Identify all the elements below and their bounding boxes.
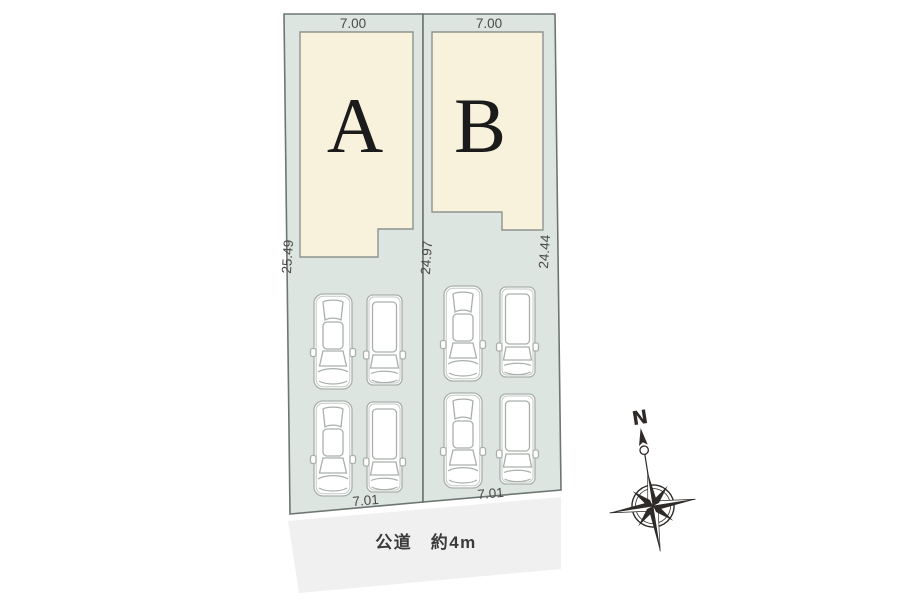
compass-rose-icon: N [597, 406, 702, 558]
lot-b-letter: B [454, 82, 506, 169]
car-minivan-icon [497, 287, 539, 377]
lot-a-letter: A [327, 82, 383, 169]
car-minivan-icon [364, 402, 406, 492]
right-depth-label: 24.44 [536, 234, 553, 269]
site-plan-canvas: 7.00 7.00 25.49 24.97 24.44 7.01 7.01 A … [0, 0, 900, 600]
lot-a-bottom-width-label: 7.01 [352, 492, 379, 509]
lot-b-top-width-label: 7.00 [476, 16, 502, 31]
car-sedan-icon [441, 286, 486, 381]
road-label: 公道 約4m [375, 532, 477, 552]
car-sedan-icon [311, 401, 356, 496]
car-sedan-icon [311, 294, 356, 389]
lot-a-top-width-label: 7.00 [340, 16, 366, 31]
car-minivan-icon [497, 394, 539, 484]
center-depth-label: 24.97 [418, 240, 435, 275]
site-plan-page: 7.00 7.00 25.49 24.97 24.44 7.01 7.01 A … [0, 0, 900, 600]
north-label: N [630, 406, 649, 430]
car-minivan-icon [364, 295, 406, 385]
left-depth-label: 25.49 [279, 239, 296, 274]
car-sedan-icon [441, 393, 486, 488]
lot-b-bottom-width-label: 7.01 [477, 485, 504, 502]
